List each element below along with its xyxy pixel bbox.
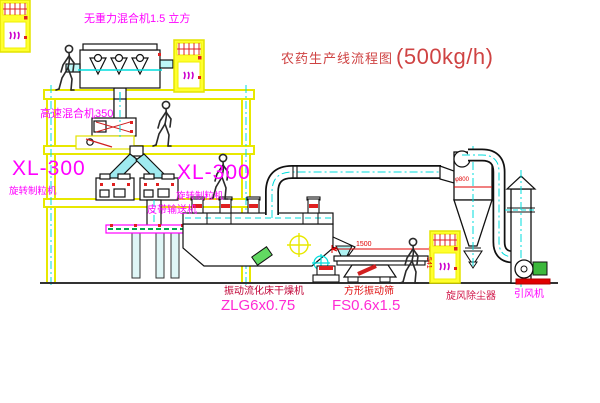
- label-gravity-free-mixer: 无重力混合机1.5 立方: [84, 14, 190, 25]
- label-belt-conveyor: 皮带输送机: [147, 206, 197, 216]
- dimension-sieve-length: 1500: [356, 241, 372, 248]
- label-fan: 引风机: [514, 290, 544, 300]
- label-high-speed-mixer: 高速混合机350: [40, 109, 113, 120]
- control-cabinet-2: [430, 231, 460, 283]
- label-cyclone: 旋风除尘器: [446, 292, 496, 302]
- label-dryer-model: ZLG6x0.75: [221, 298, 295, 313]
- title-text: 农药生产线流程图: [281, 48, 393, 67]
- title-capacity: (500kg/h): [396, 44, 493, 70]
- roof-slab: [44, 90, 254, 99]
- granulator-right: [140, 174, 178, 200]
- induced-draft-fan: [515, 260, 550, 284]
- diagram-canvas: 农药生产线流程图 (500kg/h) 无重力混合机1.5 立方 高速混合机350…: [0, 0, 600, 403]
- label-sieve-model: FS0.6x1.5: [332, 298, 400, 313]
- drawing-title: 农药生产线流程图 (500kg/h): [281, 44, 493, 70]
- label-sieve-name: 方形振动筛: [344, 287, 394, 297]
- exhaust-duct: [272, 165, 446, 218]
- label-granulator-left-model: XL-300: [12, 158, 86, 179]
- label-dryer-name: 振动流化床干燥机: [224, 287, 304, 297]
- label-granulator-right-name: 旋转制粒机: [176, 192, 224, 202]
- worker-icon-floor2: [153, 101, 171, 146]
- dimension-sieve-height: 541: [425, 257, 432, 269]
- vibrating-sieve: [332, 245, 438, 282]
- control-cabinet-1: [174, 40, 204, 92]
- high-speed-mixer: [76, 95, 136, 149]
- label-granulator-left-name: 旋转制粒机: [9, 187, 57, 197]
- label-granulator-right-model: XL-300: [177, 162, 251, 183]
- granulator-left: [96, 174, 134, 200]
- dimension-cyclone-diameter: φ800: [455, 177, 469, 183]
